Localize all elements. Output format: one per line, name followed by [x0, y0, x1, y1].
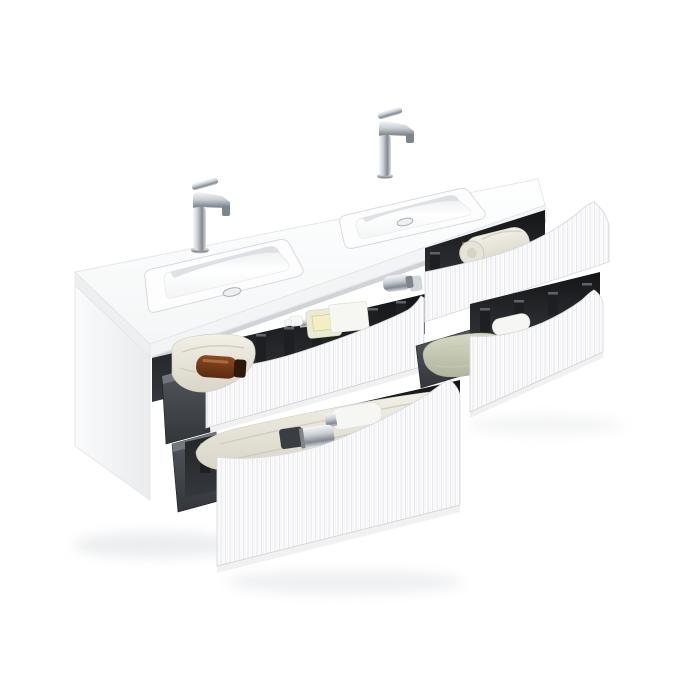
faucet-right-body: [379, 134, 391, 176]
amber-bottle-body: [195, 354, 238, 379]
shadow-left: [73, 532, 237, 558]
faucet-left-nozzle: [222, 206, 230, 216]
shadow-right: [467, 416, 623, 434]
vanity-illustration: [0, 0, 700, 700]
amber-bottle-cap: [233, 359, 246, 378]
faucet-left-body: [193, 206, 206, 251]
storage-box: [329, 301, 370, 333]
shadow-center: [227, 570, 463, 594]
soap-pump-nozzle: [284, 319, 292, 326]
product-photo: [0, 0, 700, 700]
faucet-right-nozzle: [406, 134, 414, 143]
